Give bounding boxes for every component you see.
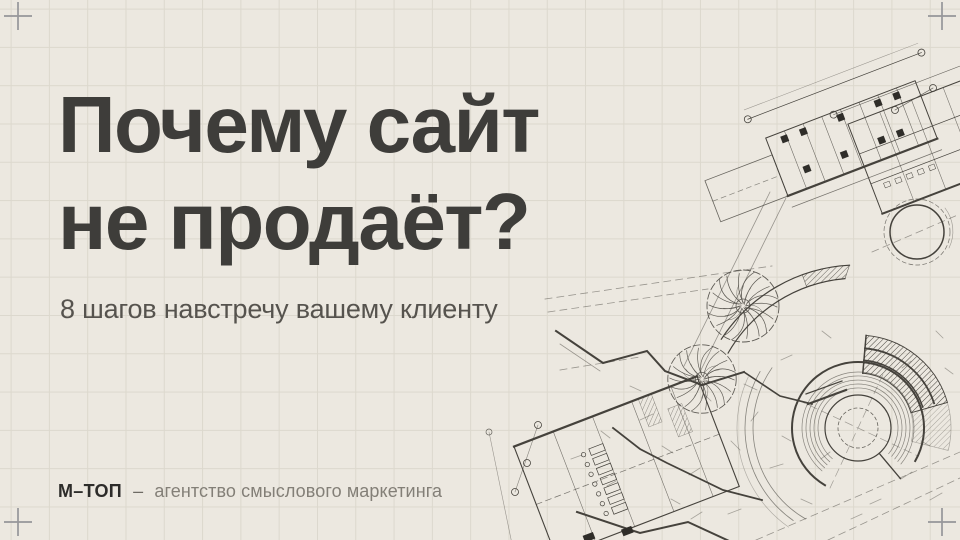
slide-title-line1: Почему сайт: [58, 76, 539, 173]
slide-footer: М–ТОП – агентство смыслового маркетинга: [58, 481, 442, 502]
slide-title: Почему сайт не продаёт?: [58, 76, 539, 270]
footer-description: агентство смыслового маркетинга: [154, 481, 442, 501]
slide-title-line2: не продаёт?: [58, 173, 539, 270]
footer-separator: –: [133, 481, 143, 501]
slide-subtitle: 8 шагов навстречу вашему клиенту: [60, 294, 498, 325]
footer-brand: М–ТОП: [58, 481, 122, 501]
slide-canvas: Почему сайт не продаёт? 8 шагов навстреч…: [0, 0, 960, 540]
slide-content: Почему сайт не продаёт? 8 шагов навстреч…: [0, 0, 960, 540]
